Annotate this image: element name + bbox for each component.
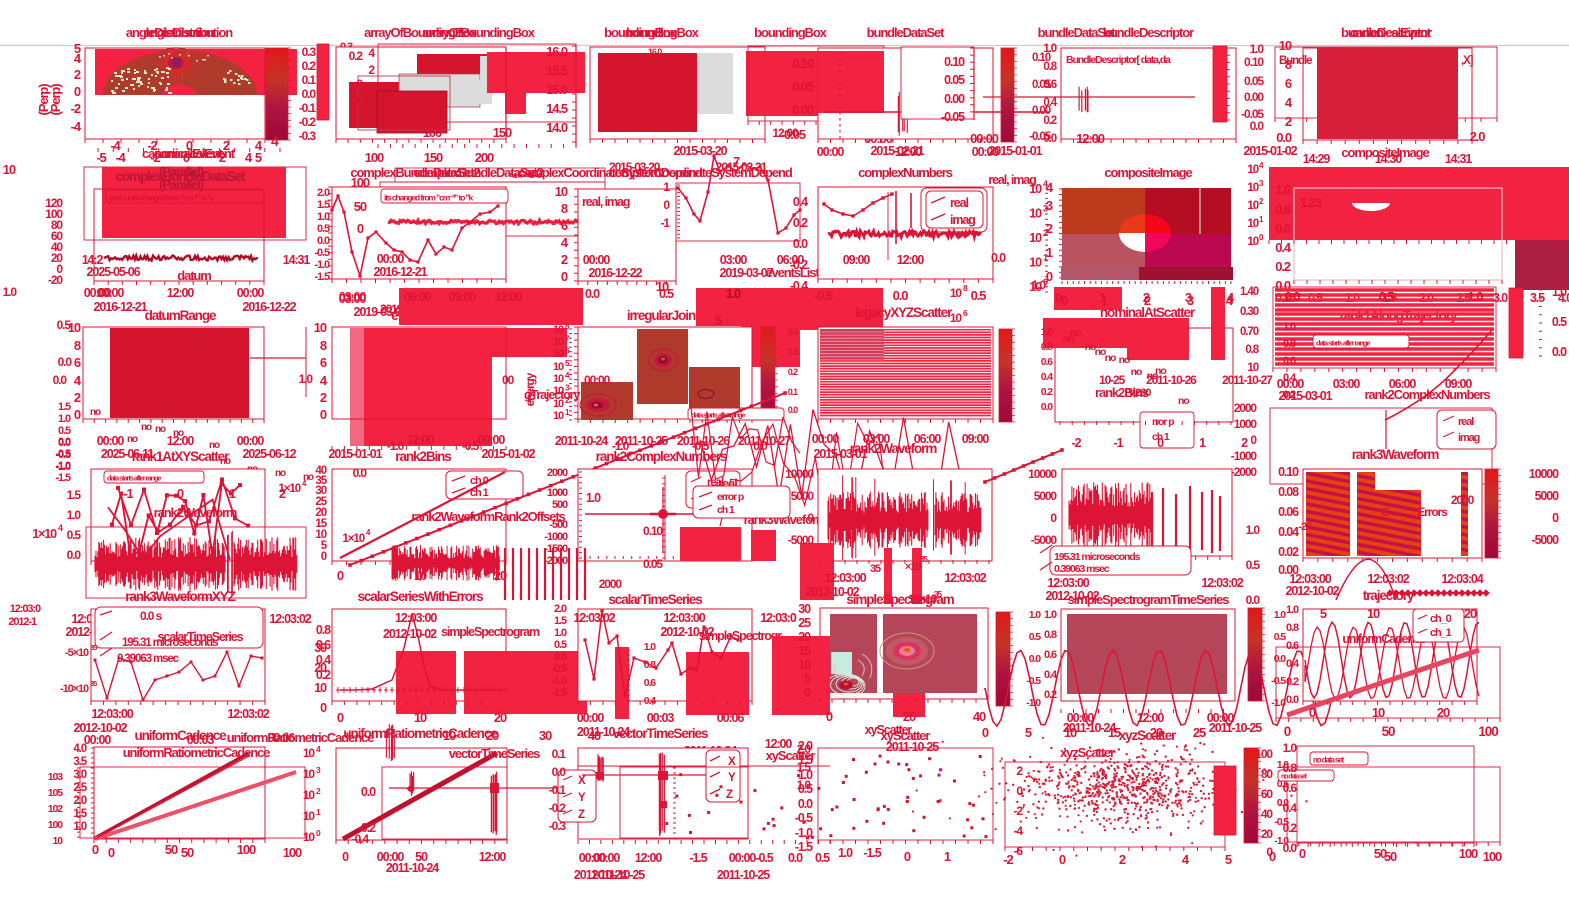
svg-text:0.5: 0.5 — [1379, 289, 1395, 304]
svg-text:0.8: 0.8 — [1286, 622, 1299, 634]
svg-text:gTrajectory: gTrajectory — [524, 388, 580, 402]
svg-text:0.05: 0.05 — [1032, 79, 1052, 91]
svg-text:100: 100 — [1483, 849, 1502, 864]
svg-text:12:00: 12:00 — [167, 286, 195, 300]
svg-text:bundleDataSet: bundleDataSet — [867, 25, 945, 40]
svg-text:2: 2 — [74, 67, 81, 82]
svg-text:35: 35 — [90, 643, 97, 652]
svg-text:-1.5: -1.5 — [314, 271, 330, 283]
svg-text:1.0: 1.0 — [1274, 609, 1287, 621]
svg-text:15: 15 — [798, 644, 811, 658]
svg-text:2011-10-24: 2011-10-24 — [386, 861, 439, 875]
svg-text:0.4: 0.4 — [1286, 658, 1300, 670]
svg-text:195.31 microseconds: 195.31 microseconds — [1054, 551, 1141, 563]
svg-text:-2: -2 — [71, 101, 81, 116]
svg-text:0.6: 0.6 — [1041, 356, 1054, 368]
svg-text:0.5: 0.5 — [67, 528, 82, 542]
svg-text:2016-12-21: 2016-12-21 — [94, 300, 148, 314]
svg-text:25: 25 — [1193, 725, 1206, 740]
svg-text:-10×10: -10×10 — [60, 683, 89, 695]
svg-text:1.0: 1.0 — [1345, 291, 1360, 305]
svg-text:-1000: -1000 — [544, 531, 568, 543]
svg-text:10000: 10000 — [1028, 467, 1057, 481]
svg-text:100: 100 — [351, 175, 370, 190]
svg-text:-0.5: -0.5 — [314, 247, 330, 259]
svg-text:-0.3: -0.3 — [549, 819, 567, 833]
svg-text:0.05: 0.05 — [643, 557, 663, 571]
svg-text:no: no — [1119, 354, 1130, 366]
svg-text:1.5: 1.5 — [798, 753, 813, 767]
svg-text:0: 0 — [1309, 705, 1316, 720]
svg-text:0: 0 — [1284, 724, 1291, 739]
svg-text:0.0: 0.0 — [1285, 289, 1301, 304]
svg-text:10: 10 — [1029, 256, 1042, 270]
svg-text:2016-12-22: 2016-12-22 — [589, 266, 643, 280]
svg-text:09:00: 09:00 — [843, 253, 871, 267]
svg-text:BundleDescriptor[ data,da: BundleDescriptor[ data,da — [1066, 54, 1171, 66]
svg-text:1.0: 1.0 — [58, 413, 71, 425]
svg-text:0.0: 0.0 — [991, 251, 1006, 265]
svg-text:vectorTimeSeries: vectorTimeSeries — [613, 726, 708, 741]
svg-text:12:03:00: 12:03:00 — [91, 707, 133, 721]
svg-text:0.05: 0.05 — [1244, 74, 1264, 88]
svg-text:0: 0 — [561, 269, 568, 284]
svg-text:12:03:02: 12:03:02 — [573, 611, 615, 625]
svg-text:10000: 10000 — [785, 467, 814, 481]
svg-text:12:03:00: 12:03:00 — [395, 611, 437, 625]
svg-text:its changed from "cm⁻³" to "k: its changed from "cm⁻³" to "k — [384, 193, 473, 203]
svg-text:00:00: 00:00 — [584, 373, 611, 387]
svg-text:2000: 2000 — [1234, 401, 1258, 415]
svg-text:2.5: 2.5 — [73, 782, 87, 794]
svg-text:0.5: 0.5 — [815, 851, 830, 865]
svg-text:30: 30 — [798, 602, 811, 616]
svg-text:-0.05: -0.05 — [1029, 131, 1051, 143]
svg-text:scalarSeriesWithErrors: scalarSeriesWithErrors — [357, 589, 483, 604]
svg-text:error p: error p — [717, 491, 744, 503]
svg-text:0.0 s: 0.0 s — [140, 609, 163, 623]
svg-text:3: 3 — [1046, 198, 1053, 213]
svg-text:0: 0 — [337, 568, 344, 583]
svg-text:2.0: 2.0 — [1470, 129, 1486, 144]
svg-text:0.2: 0.2 — [793, 216, 808, 230]
svg-text:real: real — [950, 196, 968, 210]
svg-text:5: 5 — [1225, 852, 1232, 867]
svg-text:0.5: 0.5 — [1552, 315, 1567, 329]
svg-text:boundingBox: boundingBox — [604, 25, 678, 40]
svg-text:20: 20 — [903, 709, 916, 724]
svg-text:no: no — [220, 456, 231, 467]
svg-text:1.5: 1.5 — [67, 488, 82, 502]
svg-text:rank2Waveform: rank2Waveform — [154, 505, 237, 520]
svg-text:0.8: 0.8 — [316, 623, 331, 637]
svg-text:-5000: -5000 — [1031, 533, 1058, 547]
svg-text:50: 50 — [181, 845, 194, 860]
svg-text:0.5: 0.5 — [554, 639, 567, 651]
svg-text:xyzScatter: xyzScatter — [1119, 728, 1177, 743]
svg-text:12:03:00: 12:03:00 — [824, 571, 866, 585]
svg-text:10: 10 — [53, 835, 64, 847]
svg-text:10: 10 — [553, 348, 564, 360]
svg-text:-2000: -2000 — [1231, 465, 1258, 479]
svg-text:0: 0 — [337, 710, 344, 725]
svg-text:0: 0 — [74, 84, 81, 99]
svg-text:2015-01-02: 2015-01-02 — [482, 447, 536, 461]
svg-text:20: 20 — [314, 661, 327, 675]
svg-text:-0.2: -0.2 — [299, 115, 317, 129]
svg-text:2015-02-21: 2015-02-21 — [716, 160, 768, 174]
svg-text:real: real — [1458, 416, 1474, 428]
svg-text:rank2WaveformRank2Offsets: rank2WaveformRank2Offsets — [411, 509, 565, 524]
svg-text:10: 10 — [950, 286, 963, 300]
svg-text:00:06: 00:06 — [717, 711, 745, 725]
svg-text:-0.05: -0.05 — [781, 127, 806, 142]
svg-text:rank2Waveform: rank2Waveform — [850, 441, 938, 456]
svg-text:-0.5: -0.5 — [755, 851, 773, 865]
svg-text:1.0: 1.0 — [3, 285, 18, 299]
svg-text:00:00: 00:00 — [583, 253, 611, 267]
svg-text:2: 2 — [320, 390, 327, 405]
svg-text:00:00: 00:00 — [237, 434, 265, 448]
svg-text:0.4: 0.4 — [1041, 371, 1054, 383]
svg-text:2025-06-12: 2025-06-12 — [243, 447, 297, 461]
svg-text:10: 10 — [553, 361, 564, 373]
svg-text:00:00: 00:00 — [237, 286, 265, 300]
svg-text:100: 100 — [1255, 747, 1273, 761]
svg-text:0.1: 0.1 — [302, 73, 317, 87]
svg-text:14:31: 14:31 — [283, 253, 311, 267]
svg-text:rank1AtXYScatter: rank1AtXYScatter — [132, 449, 230, 464]
svg-text:50: 50 — [165, 842, 178, 857]
svg-text:-0.4: -0.4 — [352, 832, 370, 846]
svg-text:0.0: 0.0 — [552, 765, 567, 779]
svg-text:no: no — [141, 422, 152, 433]
svg-text:2: 2 — [74, 390, 81, 405]
svg-text:0: 0 — [92, 842, 99, 857]
svg-text:-20: -20 — [48, 273, 63, 287]
svg-text:compositeImage: compositeImage — [1341, 145, 1429, 160]
svg-text:12:03:02: 12:03:02 — [227, 707, 269, 721]
svg-text:0.2: 0.2 — [1041, 386, 1054, 398]
svg-text:1.0: 1.0 — [1283, 741, 1298, 755]
svg-text:12:03:0: 12:03:0 — [760, 611, 797, 625]
svg-text:10: 10 — [553, 410, 564, 422]
svg-text:0.0: 0.0 — [893, 288, 909, 303]
svg-text:0.06: 0.06 — [1278, 505, 1299, 519]
svg-text:10000: 10000 — [1529, 467, 1559, 481]
svg-text:30: 30 — [539, 728, 552, 743]
svg-text:-0.1: -0.1 — [549, 783, 567, 797]
svg-text:-1500: -1500 — [544, 543, 568, 555]
svg-text:-0.5: -0.5 — [462, 439, 480, 453]
svg-text:-0.5: -0.5 — [814, 288, 833, 303]
svg-text:0.1: 0.1 — [552, 747, 567, 761]
svg-text:0.70: 0.70 — [1240, 326, 1259, 338]
svg-text:0: 0 — [357, 221, 364, 236]
svg-text:0.0: 0.0 — [53, 373, 68, 387]
svg-text:100: 100 — [237, 842, 256, 857]
svg-text:(Perp): (Perp) — [48, 84, 63, 116]
svg-text:2: 2 — [1119, 852, 1126, 867]
svg-text:1×10: 1×10 — [32, 527, 57, 541]
svg-text:10: 10 — [1247, 200, 1258, 212]
svg-text:10: 10 — [303, 809, 316, 823]
svg-text:10: 10 — [314, 320, 327, 335]
svg-text:no: no — [209, 440, 220, 451]
svg-text:complexNumbers: complexNumbers — [858, 165, 953, 180]
svg-text:data starts after range: data starts after range — [1316, 339, 1370, 348]
svg-text:1.5: 1.5 — [554, 615, 567, 627]
svg-text:imag: imag — [1458, 432, 1480, 444]
svg-text:12:03:02: 12:03:02 — [1201, 576, 1243, 590]
svg-text:scalarTimeSeries: scalarTimeSeries — [157, 630, 243, 644]
svg-text:2011-10-25: 2011-10-25 — [592, 868, 645, 882]
svg-text:0.05: 0.05 — [792, 79, 814, 94]
svg-text:35: 35 — [870, 563, 881, 575]
svg-text:12:00: 12:00 — [1076, 131, 1105, 146]
svg-text:rank2Bins: rank2Bins — [395, 449, 451, 464]
svg-text:0.00: 0.00 — [1032, 105, 1051, 117]
svg-text:03:00: 03:00 — [720, 253, 748, 267]
svg-text:-0.2: -0.2 — [549, 801, 567, 815]
svg-text:simpleSpectrogr: simpleSpectrogr — [699, 629, 782, 643]
svg-text:12:03:0: 12:03:0 — [10, 603, 41, 615]
svg-text:-1.0: -1.0 — [551, 675, 567, 687]
svg-text:80: 80 — [1261, 767, 1274, 781]
svg-text:00:00: 00:00 — [97, 286, 125, 300]
svg-text:compositeImage: compositeImage — [1104, 165, 1192, 180]
svg-text:06:00: 06:00 — [404, 290, 432, 304]
svg-text:0.0: 0.0 — [1250, 119, 1265, 133]
svg-text:8: 8 — [74, 338, 81, 353]
svg-text:1.0: 1.0 — [1468, 289, 1484, 304]
svg-text:50: 50 — [354, 199, 367, 214]
svg-text:10: 10 — [1247, 164, 1258, 176]
svg-text:00:03: 00:03 — [187, 733, 215, 747]
svg-text:0: 0 — [1059, 852, 1066, 867]
svg-text:0.4: 0.4 — [1283, 372, 1297, 384]
svg-text:10: 10 — [1029, 231, 1042, 245]
svg-text:1: 1 — [1099, 290, 1106, 305]
svg-text:ch_1: ch_1 — [1430, 627, 1452, 639]
svg-text:1.40: 1.40 — [1240, 286, 1259, 298]
svg-text:no: no — [90, 407, 101, 418]
svg-text:-4: -4 — [1014, 824, 1024, 838]
svg-text:50: 50 — [1382, 724, 1395, 739]
svg-text:5000: 5000 — [1535, 489, 1560, 503]
svg-text:2015-01-01: 2015-01-01 — [989, 144, 1043, 158]
svg-text:10: 10 — [303, 767, 316, 781]
svg-text:no: no — [1155, 365, 1166, 377]
svg-text:1.0: 1.0 — [1275, 182, 1291, 197]
svg-text:no: no — [127, 434, 138, 445]
svg-text:8: 8 — [1285, 57, 1292, 72]
svg-text:2.0: 2.0 — [73, 795, 86, 807]
svg-text:0.10: 0.10 — [643, 524, 663, 538]
svg-text:10: 10 — [1247, 236, 1258, 248]
svg-text:-1.5: -1.5 — [55, 472, 71, 484]
svg-text:1.0: 1.0 — [798, 768, 813, 782]
svg-text:-1.5: -1.5 — [795, 840, 813, 854]
svg-text:0: 0 — [74, 407, 81, 422]
svg-text:0.10: 0.10 — [1244, 55, 1264, 69]
svg-text:2012-1: 2012-1 — [8, 616, 37, 628]
svg-text:1.0: 1.0 — [1552, 285, 1567, 299]
svg-text:2: 2 — [561, 252, 568, 267]
svg-text:vectorTimeSeries: vectorTimeSeries — [449, 746, 540, 761]
svg-text:nominalAtScatter: nominalAtScatter — [1100, 305, 1196, 320]
svg-text:10: 10 — [303, 746, 316, 760]
svg-text:3.5: 3.5 — [73, 756, 87, 768]
svg-text:0.0: 0.0 — [361, 785, 376, 799]
svg-text:12:03:00: 12:03:00 — [663, 611, 705, 625]
svg-text:0.8: 0.8 — [1245, 344, 1259, 356]
svg-text:5000: 5000 — [791, 489, 815, 503]
svg-text:100: 100 — [365, 150, 384, 165]
svg-text:12:00: 12:00 — [635, 851, 663, 865]
svg-text:0.0: 0.0 — [302, 87, 317, 101]
svg-text:datumRange: datumRange — [145, 308, 217, 323]
svg-text:1.0: 1.0 — [1283, 321, 1296, 333]
svg-text:1.0: 1.0 — [554, 627, 567, 639]
svg-text:20: 20 — [494, 710, 507, 725]
svg-text:-0.5: -0.5 — [1271, 675, 1286, 687]
svg-text:0.5: 0.5 — [1029, 631, 1042, 643]
svg-text:0.05: 0.05 — [944, 73, 965, 87]
svg-text:12:00: 12:00 — [1137, 711, 1165, 725]
svg-text:-1: -1 — [661, 216, 671, 230]
svg-text:V,260: V,260 — [1128, 387, 1151, 399]
svg-text:arrayOfBoundingBox: arrayOfBoundingBox — [422, 25, 536, 40]
svg-text:-1: -1 — [123, 486, 133, 501]
svg-text:-0.3: -0.3 — [299, 129, 317, 143]
svg-text:0.0: 0.0 — [1276, 130, 1292, 145]
svg-text:0: 0 — [982, 725, 989, 740]
svg-text:20: 20 — [1464, 606, 1477, 621]
svg-text:00:00: 00:00 — [478, 433, 506, 447]
svg-text:10-25: 10-25 — [1099, 373, 1126, 387]
svg-text:2.0: 2.0 — [1419, 291, 1434, 305]
svg-text:2: 2 — [1143, 290, 1150, 305]
svg-text:1.0: 1.0 — [299, 372, 314, 386]
svg-text:100: 100 — [1478, 724, 1498, 739]
svg-text:12:00: 12:00 — [407, 433, 435, 447]
svg-text:0.10: 0.10 — [1032, 52, 1051, 64]
svg-text:0.4: 0.4 — [793, 195, 808, 209]
svg-text:-1.0: -1.0 — [387, 439, 405, 453]
svg-text:00:00: 00:00 — [593, 851, 621, 865]
svg-text:-1000: -1000 — [1231, 449, 1258, 463]
svg-text:2011-10-26: 2011-10-26 — [1146, 373, 1197, 387]
svg-text:0.8: 0.8 — [644, 659, 657, 671]
svg-text:0.2: 0.2 — [1275, 259, 1291, 274]
svg-text:bundleDataSet: bundleDataSet — [1038, 25, 1116, 40]
svg-text:0.8: 0.8 — [1041, 341, 1054, 353]
svg-text:datum: datum — [177, 268, 211, 283]
svg-text:0.0: 0.0 — [1552, 345, 1567, 359]
svg-text:16.0: 16.0 — [546, 44, 568, 59]
svg-text:0.3: 0.3 — [788, 347, 798, 357]
svg-text:-1.5: -1.5 — [863, 846, 881, 860]
svg-text:1.0: 1.0 — [726, 287, 741, 301]
svg-text:10: 10 — [3, 162, 16, 177]
svg-text:-2: -2 — [1014, 804, 1024, 818]
svg-text:0.00: 0.00 — [792, 102, 814, 117]
svg-text:0.4: 0.4 — [1283, 801, 1298, 815]
svg-text:12:03:02: 12:03:02 — [269, 612, 311, 626]
svg-text:1.0: 1.0 — [1041, 326, 1054, 338]
svg-text:2011-10-24: 2011-10-24 — [555, 434, 608, 448]
svg-text:2016-12-21: 2016-12-21 — [374, 265, 428, 279]
svg-text:03:00: 03:00 — [1333, 377, 1361, 391]
svg-text:-2000: -2000 — [544, 555, 568, 567]
svg-text:no data set: no data set — [1313, 756, 1345, 765]
svg-text:irregularJoin: irregularJoin — [627, 308, 696, 323]
svg-text:-1.5: -1.5 — [689, 851, 707, 865]
svg-text:-1.0: -1.0 — [55, 460, 71, 472]
svg-text:10: 10 — [1367, 606, 1380, 621]
svg-text:200: 200 — [475, 150, 494, 165]
svg-text:2016-12-22: 2016-12-22 — [243, 300, 297, 314]
svg-text:10: 10 — [555, 184, 568, 199]
svg-text:12:03:02: 12:03:02 — [944, 571, 986, 585]
svg-text:0.2: 0.2 — [302, 59, 317, 73]
svg-text:-1.0: -1.0 — [612, 439, 630, 453]
svg-text:2000: 2000 — [1451, 493, 1475, 507]
svg-text:-20: -20 — [1298, 521, 1312, 533]
svg-text:1×10: 1×10 — [342, 533, 364, 545]
svg-text:2000: 2000 — [547, 467, 568, 479]
svg-text:0: 0 — [1299, 846, 1306, 861]
svg-text:2011-10-25: 2011-10-25 — [717, 868, 770, 882]
svg-text:-1.0: -1.0 — [795, 826, 813, 840]
svg-text:0.6: 0.6 — [644, 677, 657, 689]
svg-text:2.0: 2.0 — [317, 187, 330, 199]
svg-text:0.10: 0.10 — [944, 55, 965, 69]
svg-text:2000: 2000 — [599, 577, 623, 591]
svg-text:1.0: 1.0 — [1044, 609, 1057, 621]
svg-text:0.04: 0.04 — [1278, 525, 1299, 539]
svg-text:no: no — [1085, 341, 1096, 353]
svg-text:-1.0: -1.0 — [314, 259, 330, 271]
svg-text:1.23: 1.23 — [1300, 195, 1322, 210]
svg-text:8: 8 — [561, 201, 568, 216]
svg-text:2025-05-06: 2025-05-06 — [87, 265, 141, 279]
svg-text:1.5: 1.5 — [317, 199, 330, 211]
svg-text:no: no — [173, 428, 184, 439]
svg-text:0.00: 0.00 — [944, 92, 965, 106]
svg-text:0.0: 0.0 — [1286, 694, 1299, 706]
svg-text:angleDistribution: angleDistribution — [126, 25, 215, 40]
svg-text:09:00: 09:00 — [962, 432, 990, 446]
svg-text:0.08: 0.08 — [1278, 485, 1299, 499]
svg-text:10: 10 — [1247, 218, 1258, 230]
svg-text:0.0: 0.0 — [1041, 401, 1054, 413]
svg-text:data starts after range: data starts after range — [107, 474, 161, 483]
svg-text:30: 30 — [314, 641, 327, 655]
svg-text:150: 150 — [424, 150, 443, 165]
svg-text:3: 3 — [1185, 290, 1192, 305]
svg-text:0.6: 0.6 — [1286, 640, 1299, 652]
svg-text:-0.5: -0.5 — [55, 448, 71, 460]
svg-text:10: 10 — [656, 279, 669, 294]
svg-text:105: 105 — [48, 787, 63, 799]
svg-text:0.5: 0.5 — [1274, 631, 1287, 643]
svg-text:10: 10 — [798, 658, 811, 672]
svg-text:00:00: 00:00 — [817, 145, 845, 159]
svg-text:15.0: 15.0 — [546, 82, 568, 97]
svg-text:1.5: 1.5 — [73, 808, 87, 820]
